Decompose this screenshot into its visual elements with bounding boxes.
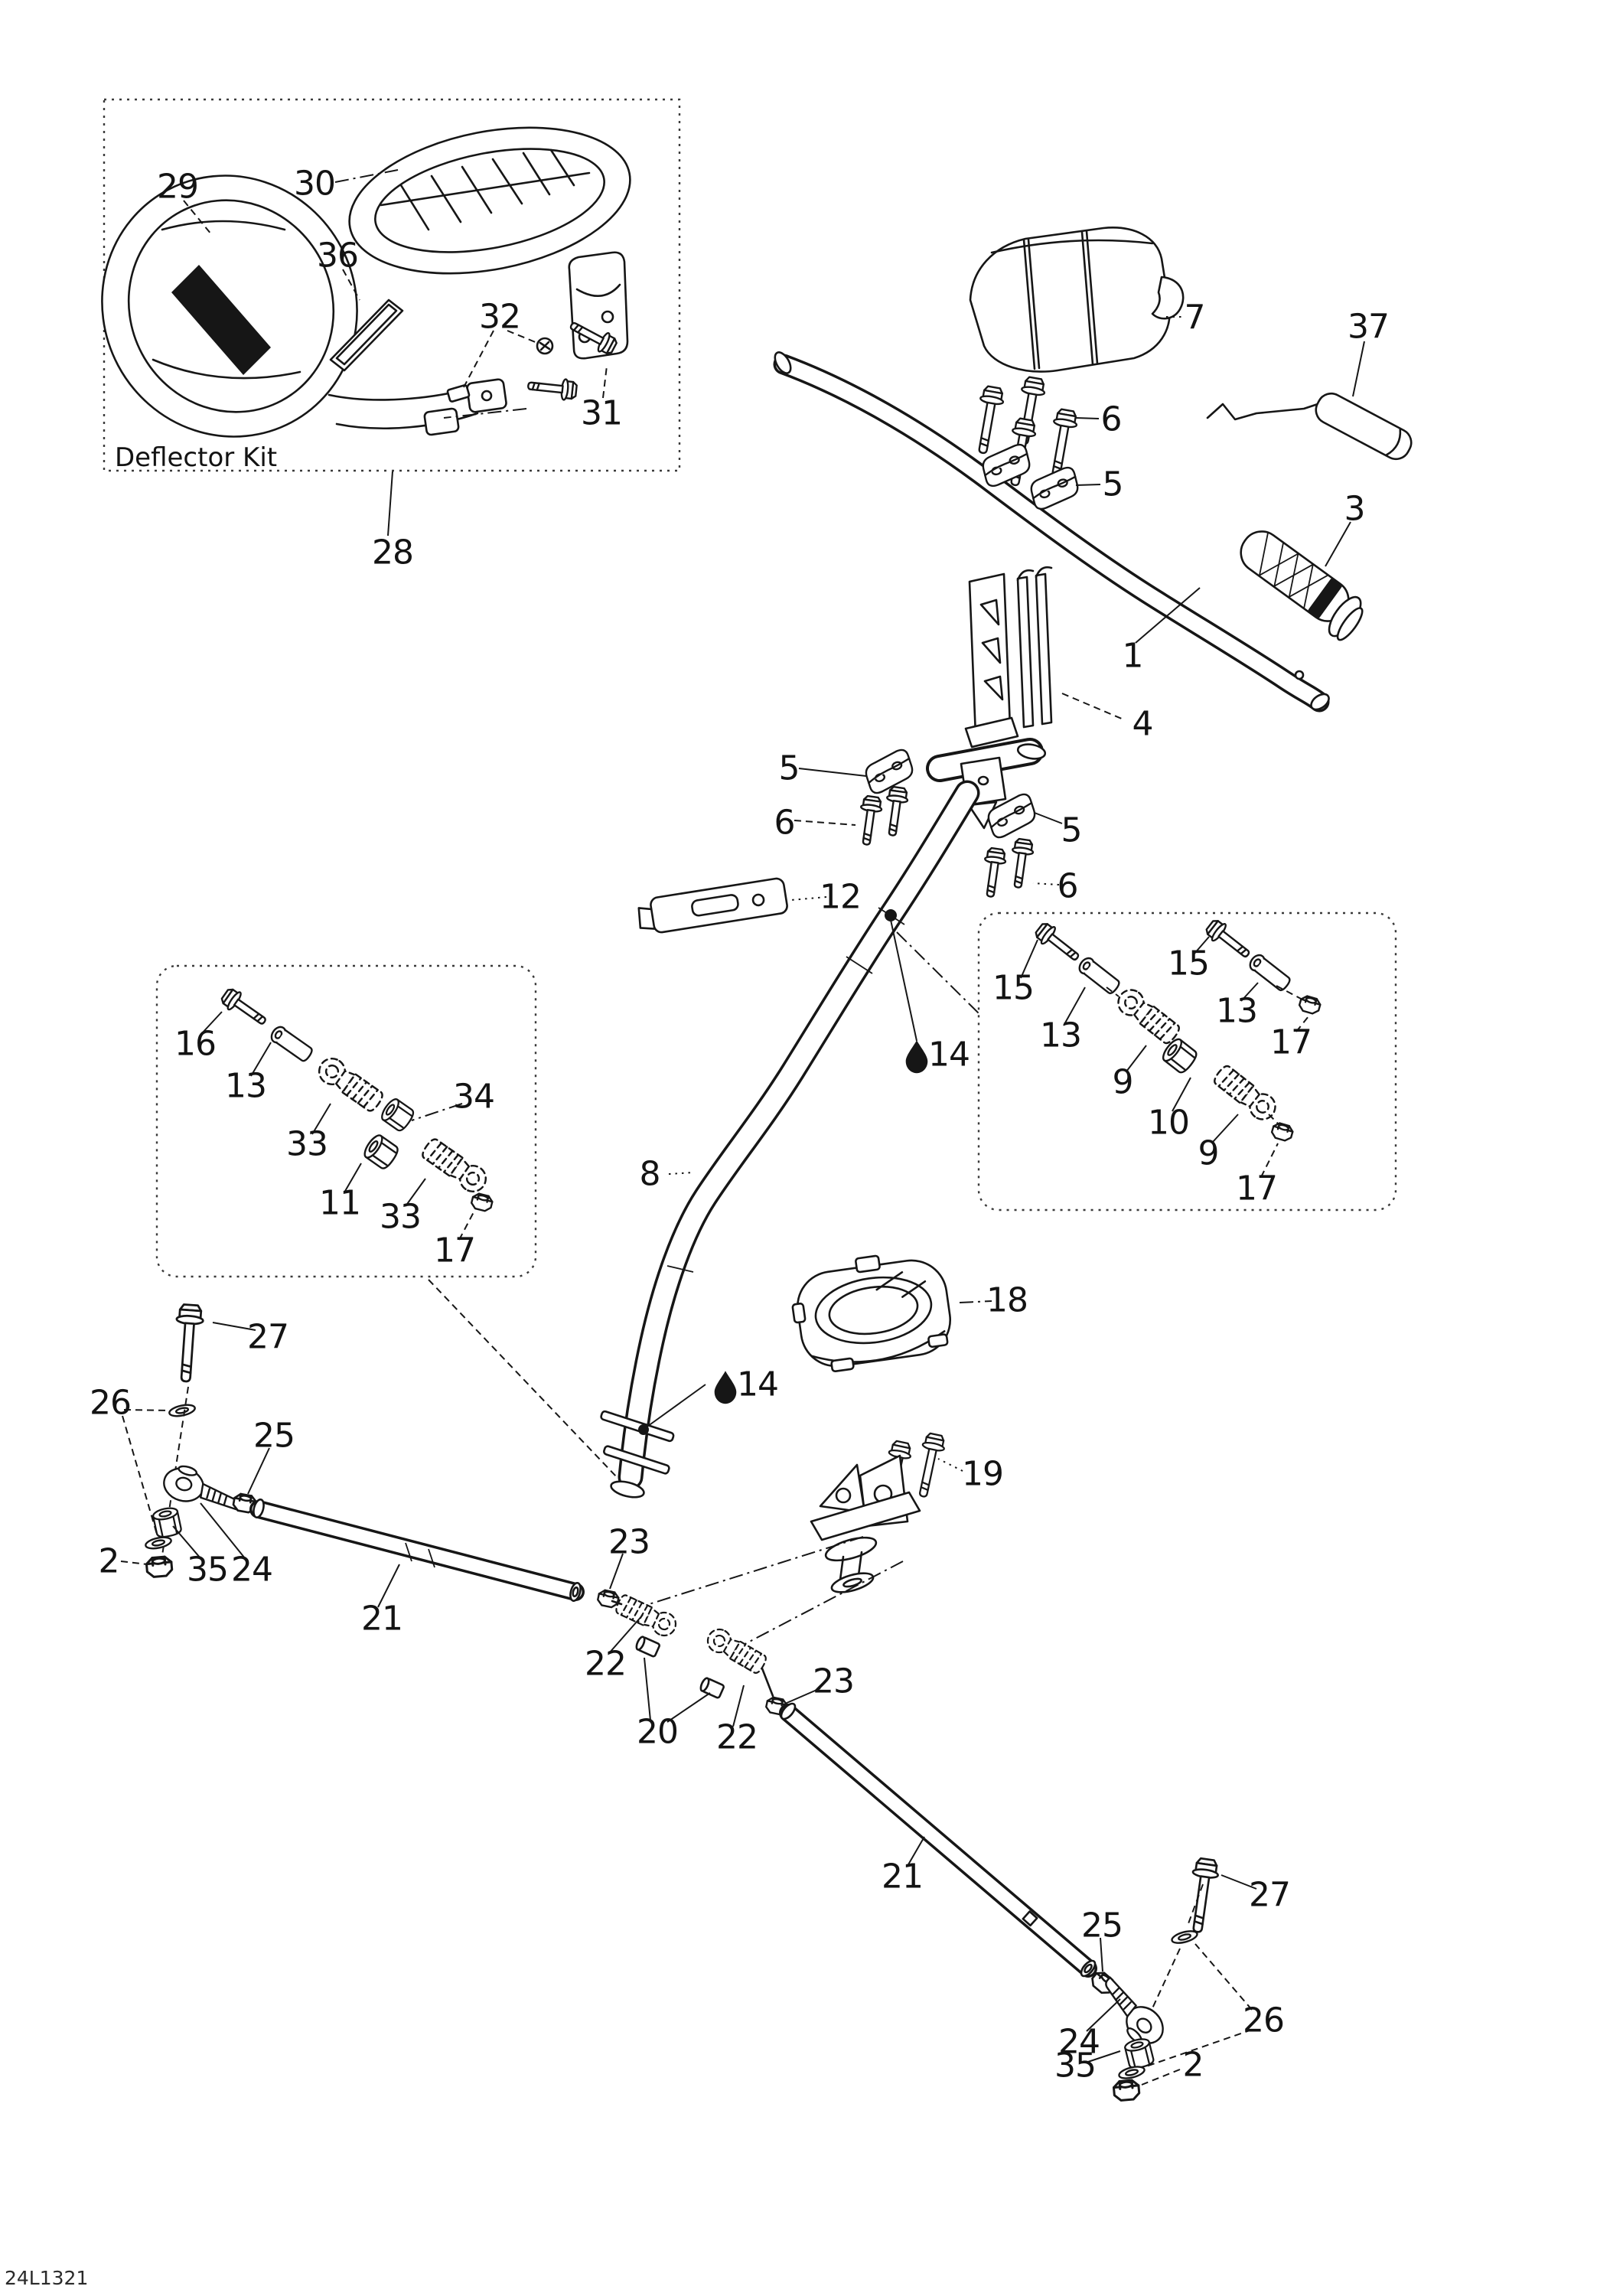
callout-15: 15 [992,969,1034,1008]
leader-4 [1062,693,1123,719]
callout-5: 5 [1103,465,1123,504]
part-plate-12 [636,878,788,936]
callout-36: 36 [317,236,358,276]
part-steering-column [601,742,1047,1500]
callout-25: 25 [253,1417,295,1456]
part-riser-bracket [966,567,1051,747]
callout-2: 2 [1183,2046,1204,2085]
part-bracket-19 [811,1432,947,1596]
callout-13: 13 [1216,992,1257,1031]
callout-23: 23 [608,1523,650,1562]
callout-9: 9 [1198,1134,1219,1173]
callout-17: 17 [1270,1023,1312,1062]
callout-35: 35 [1054,2047,1096,2086]
part-washer-26-right-lower [1118,2065,1146,2081]
leader-32b [464,331,494,387]
callout-10: 10 [1148,1104,1189,1143]
callout-14: 14 [737,1365,778,1404]
part-pivot-20-a [635,1636,660,1657]
part-nut-2-left [146,1556,173,1577]
callout-1: 1 [1123,637,1143,676]
part-handlebar [772,350,1332,713]
callout-21: 21 [882,1857,923,1896]
callout-25: 25 [1081,1906,1123,1945]
callout-37: 37 [1348,308,1389,347]
callout-32: 32 [479,298,520,337]
callout-28: 28 [372,533,413,572]
leader-26-left-b [122,1416,158,1537]
clip-32 [447,385,469,403]
callout-15: 15 [1168,944,1209,983]
link-to-column-base [429,1280,617,1477]
figure-code: 24L1321 [5,2267,88,2289]
callout-17: 17 [434,1231,475,1270]
lube-point-lower [638,1424,649,1435]
leader-6-top [1076,418,1099,419]
callout-5: 5 [1061,811,1082,850]
part-rod-end-22-right [704,1626,769,1676]
tie-rod-right-assembly [779,1701,1256,2101]
callout-9: 9 [1113,1063,1133,1102]
leader-37 [1353,341,1364,396]
leader-20-a [644,1658,650,1720]
part-cover-18 [787,1247,956,1376]
callout-21: 21 [361,1600,402,1639]
callout-24: 24 [231,1551,272,1590]
callout-33: 33 [286,1125,328,1164]
callout-6: 6 [774,804,795,843]
leader-2-left [121,1561,147,1564]
callout-8: 8 [640,1155,660,1194]
callout-14: 14 [928,1035,970,1075]
callout-13: 13 [225,1067,266,1106]
part-nut-23-left [597,1589,620,1608]
callout-17: 17 [1236,1169,1277,1208]
callout-12: 12 [820,878,861,917]
callout-31: 31 [581,394,622,433]
part-washer-26-right-upper [1171,1929,1198,1945]
callout-19: 19 [962,1455,1003,1494]
leader-26-right-a [1195,1944,1252,2010]
callout-18: 18 [986,1281,1028,1320]
callout-27: 27 [247,1318,288,1357]
callout-23: 23 [813,1662,854,1701]
part-bolt-27-left [172,1304,204,1382]
leader-5-top [1076,484,1100,485]
callout-16: 16 [174,1025,216,1064]
callout-27: 27 [1249,1876,1290,1915]
oil-droplet-icon [906,1040,928,1073]
part-clamp-5-left [862,748,917,795]
leader-6-left [794,820,855,825]
callout-13: 13 [1040,1016,1081,1055]
callout-5: 5 [779,749,800,788]
part-spacer-35-left [152,1506,182,1538]
part-grip-heater-kit [1207,389,1416,464]
part-rod-end-22-left [614,1593,680,1639]
center-link-assembly [597,1554,820,1727]
part-nut-2-right [1113,2079,1140,2101]
leader-8 [669,1172,693,1174]
callout-34: 34 [453,1078,494,1117]
link-to-right-inset [897,932,979,1013]
callout-29: 29 [157,168,198,207]
callout-22: 22 [585,1645,626,1684]
callout-26: 26 [1243,2001,1284,2040]
callout-11: 11 [319,1184,360,1223]
leader-2-right [1142,2069,1180,2085]
tie-rod-inset-left [157,966,536,1277]
leader-6-right [1033,883,1059,885]
callout-26: 26 [90,1384,131,1423]
callout-7: 7 [1185,298,1205,338]
parts-diagram-page: Deflector Kit 29303632312873765314565612… [0,0,1623,2296]
callout-4: 4 [1133,705,1153,744]
leader-19 [938,1459,963,1471]
callout-33: 33 [380,1198,421,1237]
part-grip [1230,523,1370,644]
oil-droplet-icon [715,1371,737,1404]
deflector-kit-label: Deflector Kit [115,442,277,473]
callout-6: 6 [1101,400,1122,439]
leader-3 [1325,522,1351,566]
part-bolts-6-left [856,786,910,846]
callout-22: 22 [716,1718,758,1757]
leader-5-right [1035,813,1062,823]
callout-3: 3 [1344,490,1365,529]
assembly-axis-right [739,1561,903,1647]
callout-20: 20 [637,1713,678,1752]
tie-rod-inset-left-box [157,966,536,1277]
assembly-axis-left [644,1537,863,1606]
part-pivot-20-b [699,1677,725,1698]
part-washer-26-left-upper [168,1403,196,1418]
part-washer-26-left-lower [145,1535,172,1551]
lube-point-upper [885,909,897,921]
part-handlebar-pad [970,227,1183,371]
part-bolt-27-right [1185,1857,1220,1933]
callout-30: 30 [294,165,335,204]
part-bolts-6-right [980,838,1035,898]
callout-2: 2 [99,1542,119,1581]
leader-5-left [799,768,866,776]
leader-28 [388,471,393,536]
callout-35: 35 [187,1551,228,1590]
callout-6: 6 [1058,867,1078,906]
